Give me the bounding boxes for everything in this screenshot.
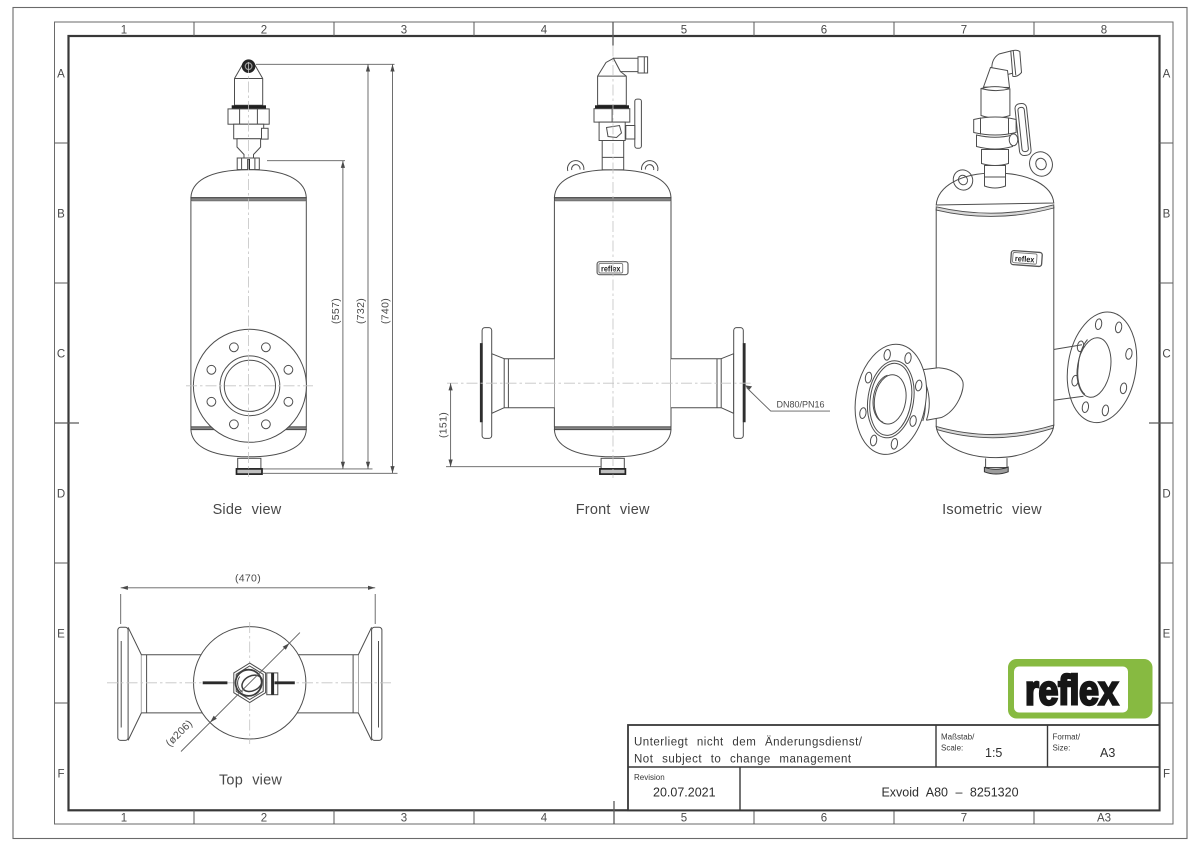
svg-text:E: E (57, 629, 65, 641)
svg-text:Not subject to change manageme: Not subject to change management (634, 754, 852, 766)
svg-text:Format/: Format/ (1053, 733, 1081, 742)
svg-text:Size:: Size: (1053, 744, 1071, 753)
svg-text:Revision: Revision (634, 773, 665, 782)
svg-text:D: D (57, 489, 65, 501)
svg-text:D: D (1162, 489, 1170, 501)
svg-text:3: 3 (401, 813, 407, 825)
svg-text:3: 3 (401, 25, 407, 37)
svg-text:F: F (1163, 769, 1170, 781)
svg-text:1: 1 (121, 813, 127, 825)
svg-text:C: C (57, 349, 65, 361)
svg-text:2: 2 (261, 813, 267, 825)
svg-text:Maßstab/: Maßstab/ (941, 733, 975, 742)
svg-text:8: 8 (1101, 25, 1107, 37)
svg-text:20.07.2021: 20.07.2021 (653, 786, 716, 800)
svg-text:(470): (470) (235, 573, 261, 585)
svg-text:Scale:: Scale: (941, 744, 963, 753)
svg-text:B: B (1163, 209, 1171, 221)
svg-text:5: 5 (681, 813, 687, 825)
svg-text:5: 5 (681, 25, 687, 37)
svg-text:Front view: Front view (576, 502, 650, 518)
svg-text:4: 4 (541, 25, 548, 37)
svg-text:Unterliegt nicht dem Änderungs: Unterliegt nicht dem Änderungsdienst/ (634, 737, 863, 749)
svg-text:6: 6 (821, 25, 827, 37)
svg-text:reflex: reflex (1015, 254, 1036, 264)
svg-text:reflex: reflex (601, 264, 621, 273)
svg-text:1:5: 1:5 (985, 746, 1002, 760)
svg-text:reflex: reflex (1025, 667, 1119, 714)
svg-text:1: 1 (121, 25, 127, 37)
svg-text:(732): (732) (355, 298, 367, 324)
svg-text:E: E (1163, 629, 1171, 641)
svg-text:(557): (557) (330, 298, 342, 324)
svg-text:(740): (740) (379, 298, 391, 324)
svg-text:7: 7 (961, 813, 967, 825)
svg-text:(151): (151) (438, 412, 450, 438)
svg-text:Exvoid A80 – 8251320: Exvoid A80 – 8251320 (881, 786, 1018, 800)
svg-text:A: A (57, 69, 65, 81)
svg-text:2: 2 (261, 25, 267, 37)
svg-text:A: A (1163, 69, 1171, 81)
svg-text:B: B (57, 209, 65, 221)
svg-text:4: 4 (541, 813, 548, 825)
svg-text:7: 7 (961, 25, 967, 37)
svg-text:Top view: Top view (219, 773, 282, 789)
svg-text:F: F (57, 769, 64, 781)
svg-text:C: C (1162, 349, 1170, 361)
svg-text:A3: A3 (1100, 746, 1115, 760)
svg-text:DN80/PN16: DN80/PN16 (777, 400, 825, 410)
svg-text:6: 6 (821, 813, 827, 825)
svg-text:Side view: Side view (213, 502, 282, 518)
svg-text:A3: A3 (1097, 813, 1111, 825)
svg-text:Isometric view: Isometric view (942, 502, 1042, 518)
